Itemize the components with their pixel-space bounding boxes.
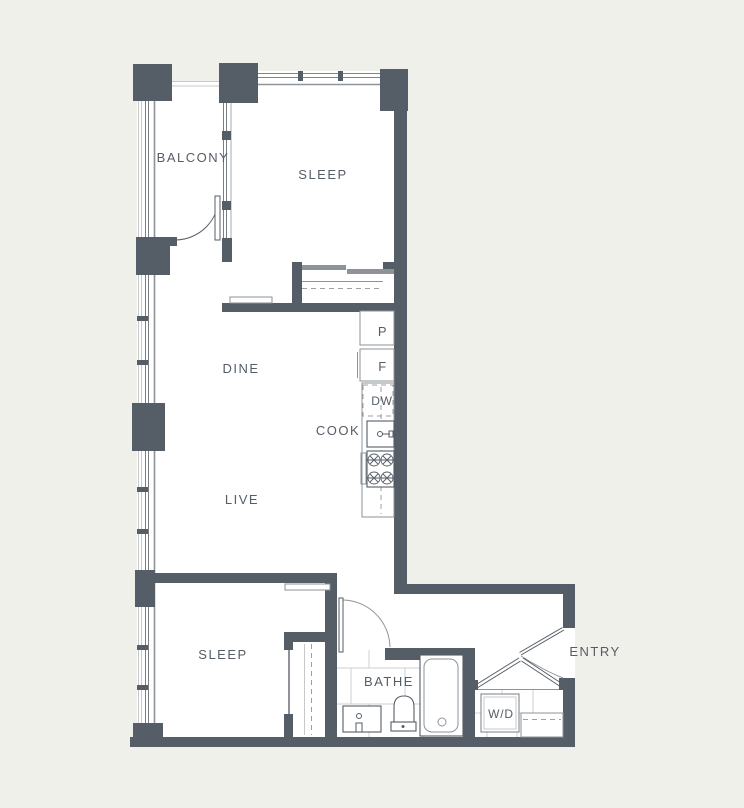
window-mullion [137,316,148,321]
window-mullion [137,487,148,492]
room-label-sleep-upper: SLEEP [298,167,347,182]
window-mullion [137,645,148,650]
sleep-lower-wall-shelf [285,584,330,590]
closet-jamb [284,714,293,737]
wall-closet-upper-left [292,262,302,303]
room-label-balcony: BALCONY [157,150,230,165]
dine-wall-shelf [230,297,272,303]
appliance-label-dishwasher: DW [371,394,393,408]
toilet-bowl [394,696,414,722]
wall-entry-lower [563,690,575,737]
wall-sleep-lower-north [137,573,337,583]
appliance-label-pantry: P [378,324,388,339]
laundry-shelf [521,713,563,737]
wall-l-corner [394,584,575,594]
tub-outer [420,655,463,736]
floor-plan: BALCONY SLEEP DINE COOK LIVE SLEEP BATHE… [0,0,744,808]
column [133,64,172,101]
room-label-live: LIVE [225,492,259,507]
column [133,723,163,738]
toilet [391,696,416,731]
door-leaf [215,196,220,240]
cooktop [361,451,394,487]
door-leaf [339,598,343,652]
vanity-sink [343,706,381,732]
window-mullion [137,685,148,690]
room-label-cook: COOK [316,423,360,438]
floor-plan-page: BALCONY SLEEP DINE COOK LIVE SLEEP BATHE… [0,0,744,808]
window-mullion [298,71,303,81]
closet-jamb [284,632,293,650]
room-label-entry: ENTRY [569,644,620,659]
toilet-flush-dot [402,725,405,728]
unit-footprint [137,63,575,747]
kitchen [358,311,395,517]
room-label-sleep-lower: SLEEP [198,647,247,662]
wall-balcony-stub [222,238,232,262]
wall-entry-upper [563,584,575,628]
wall-tub-east [463,648,475,737]
column [219,63,258,103]
window-mullion [137,360,148,365]
appliance-label-refrigerator: F [378,359,387,374]
entry-door-jamb [559,678,575,690]
refrigerator-box [360,349,394,381]
window-mullion [137,529,148,534]
window-mullion [222,201,231,210]
window-mullion [338,71,343,81]
column [136,237,170,275]
window-mullion [222,131,231,140]
column [132,403,165,451]
room-label-bathe: BATHE [364,674,414,689]
wall-east [394,69,407,594]
wall-south [130,737,575,747]
kitchen-sink [367,421,394,447]
wall-closet-bath-divider [325,583,337,737]
appliance-label-washer-dryer: W/D [488,707,514,721]
room-label-dine: DINE [222,361,259,376]
sliding-door-panel [302,265,346,270]
sliding-door-panel [347,269,394,274]
bathtub [420,655,463,736]
cooktop-body [367,451,394,487]
balcony-door-jamb [168,237,177,246]
